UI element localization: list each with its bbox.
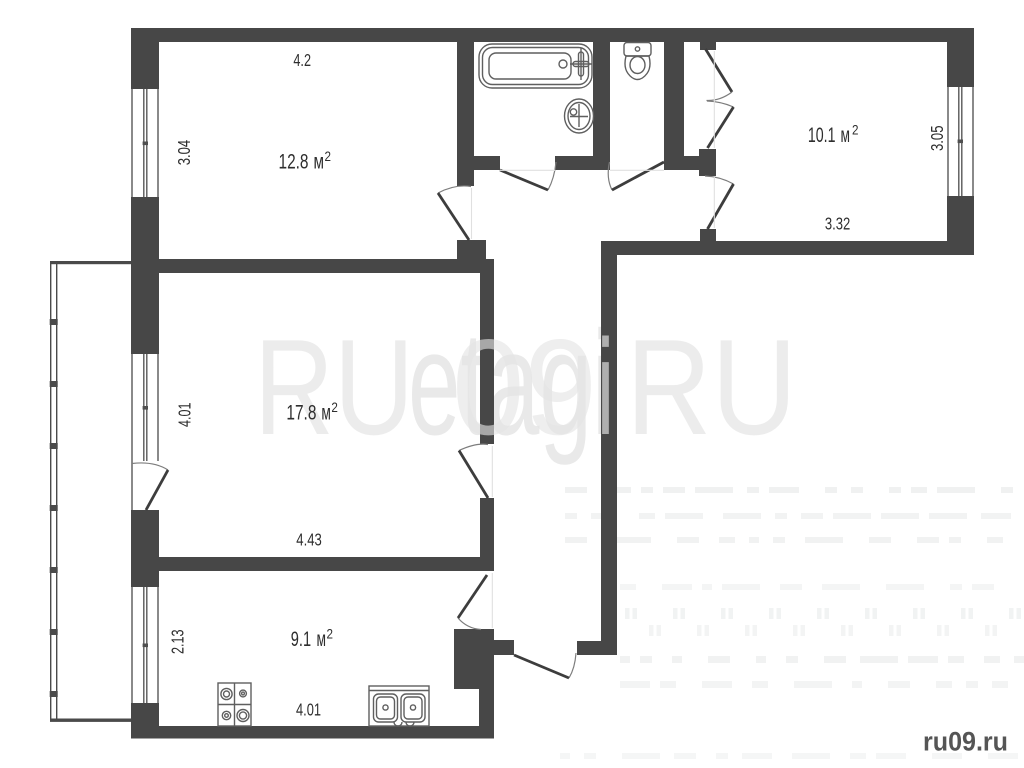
svg-text:2: 2	[331, 399, 338, 415]
svg-text:12.8: 12.8	[279, 150, 309, 174]
svg-text:4.2: 4.2	[293, 50, 311, 70]
svg-text:м: м	[841, 123, 851, 147]
svg-text:м: м	[314, 150, 325, 174]
svg-text:RU: RU	[254, 311, 414, 463]
svg-text:м: м	[317, 627, 327, 651]
svg-text:i: i	[597, 311, 614, 463]
svg-text:м: м	[321, 401, 331, 425]
svg-text:4.01: 4.01	[175, 403, 195, 428]
svg-text:4.43: 4.43	[296, 530, 322, 550]
svg-text:09: 09	[452, 311, 597, 463]
svg-text:9.1: 9.1	[291, 627, 311, 651]
svg-text:3.04: 3.04	[174, 140, 194, 166]
svg-text:4.01: 4.01	[296, 700, 321, 720]
svg-text:ru09.ru: ru09.ru	[923, 727, 1008, 757]
svg-text:3.32: 3.32	[825, 214, 850, 234]
svg-text:2: 2	[327, 626, 334, 642]
svg-text:RU: RU	[626, 311, 797, 463]
svg-text:2: 2	[852, 122, 859, 138]
svg-text:17.8: 17.8	[286, 401, 316, 425]
svg-text:10.1: 10.1	[808, 123, 836, 147]
svg-text:3.05: 3.05	[927, 126, 947, 152]
svg-text:2: 2	[325, 148, 332, 164]
svg-text:2.13: 2.13	[167, 630, 187, 655]
